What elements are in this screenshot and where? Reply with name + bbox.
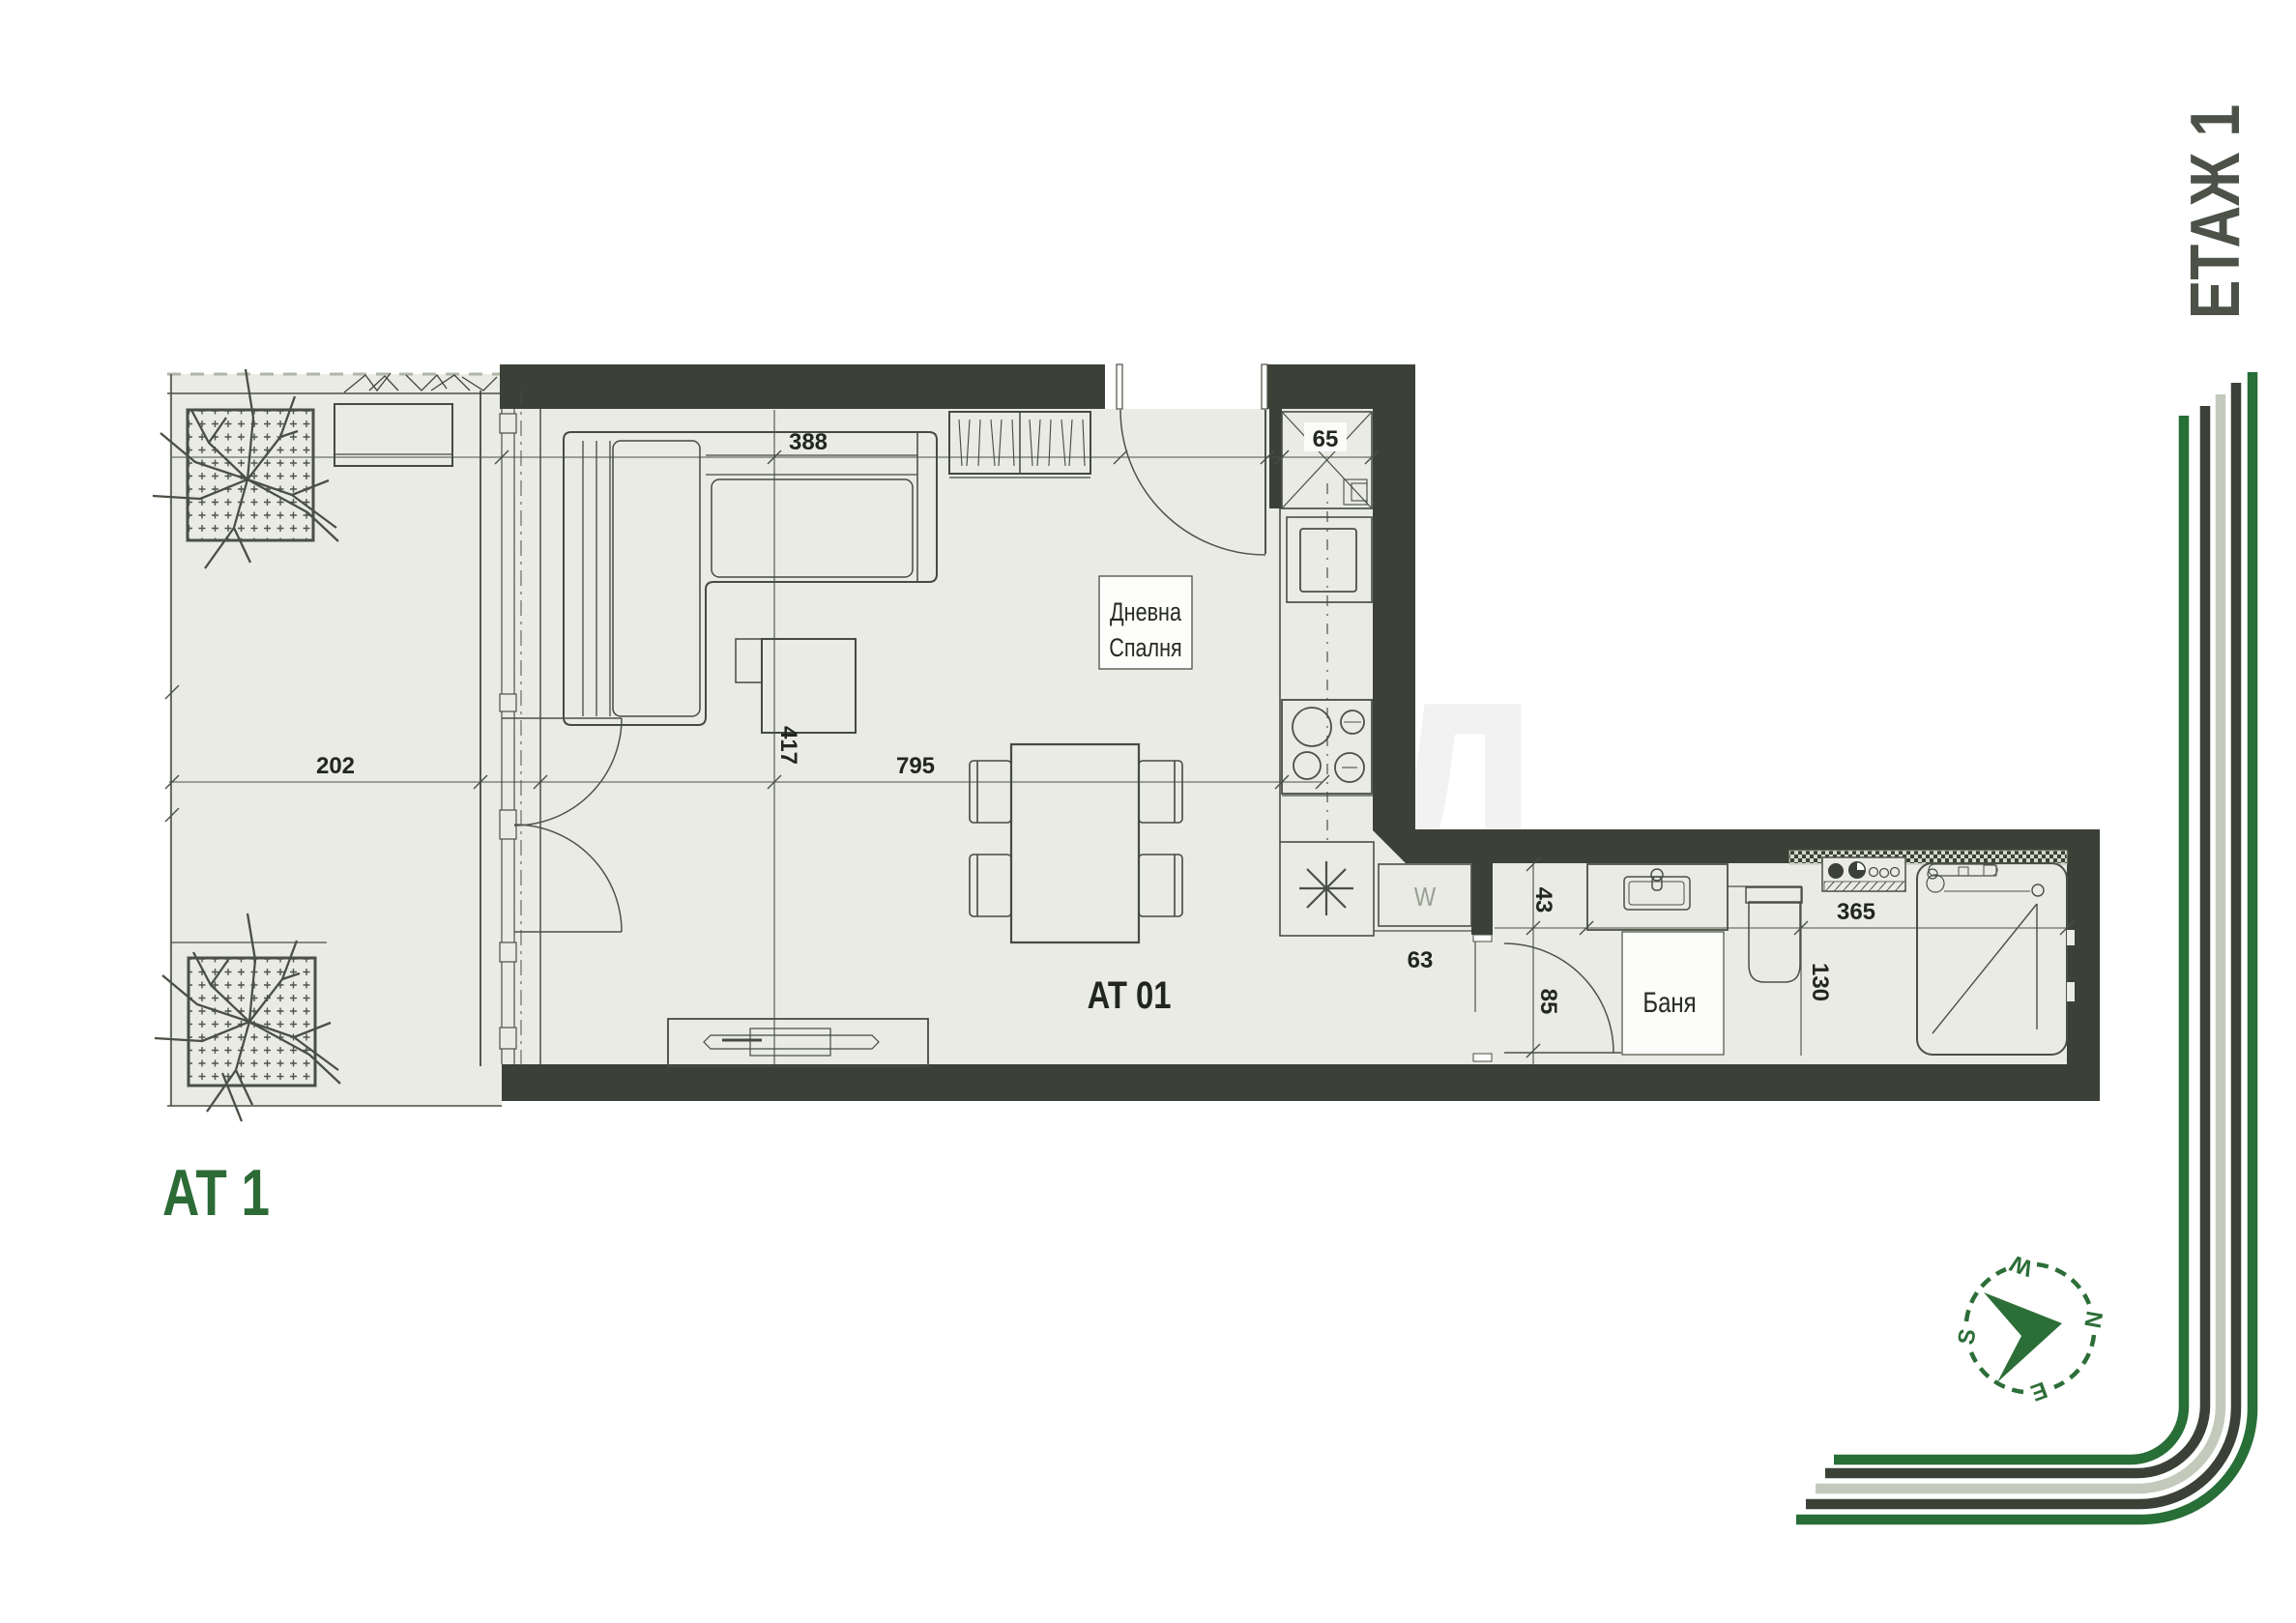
svg-text:795: 795 (896, 753, 935, 779)
svg-text:417: 417 (775, 726, 801, 765)
svg-text:ЕТАЖ 1: ЕТАЖ 1 (2177, 104, 2254, 319)
svg-text:Баня: Баня (1642, 985, 1696, 1018)
svg-text:AT 1: AT 1 (162, 1156, 270, 1230)
svg-text:63: 63 (1408, 947, 1434, 973)
svg-text:S: S (1953, 1327, 1981, 1347)
svg-text:388: 388 (789, 429, 828, 455)
svg-text:W: W (1414, 881, 1437, 912)
svg-text:Дневна: Дневна (1110, 598, 1181, 627)
svg-text:43: 43 (1530, 887, 1556, 913)
svg-text:130: 130 (1807, 963, 1833, 1001)
svg-text:85: 85 (1535, 989, 1561, 1015)
svg-text:365: 365 (1837, 899, 1875, 925)
svg-text:W: W (2006, 1249, 2036, 1281)
svg-text:202: 202 (316, 753, 355, 779)
svg-text:N: N (2078, 1309, 2107, 1330)
svg-text:Спалня: Спалня (1109, 634, 1182, 663)
svg-text:E: E (2027, 1377, 2050, 1406)
svg-text:65: 65 (1313, 426, 1339, 452)
svg-text:AT 01: AT 01 (1088, 973, 1172, 1017)
